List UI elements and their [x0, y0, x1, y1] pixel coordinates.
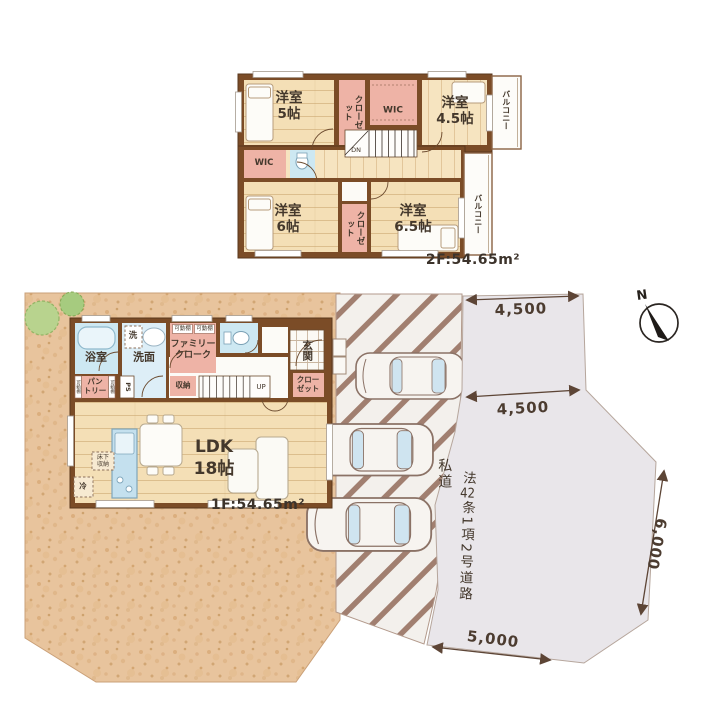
north-compass-icon [640, 304, 678, 342]
washing-machine [125, 326, 142, 348]
room-entrance [290, 330, 324, 370]
toilet-2f [290, 150, 315, 178]
floor-2f-area-label: 2F:54.65m² [420, 252, 520, 268]
floor-2f-plan [236, 72, 522, 259]
balcony-top [492, 76, 521, 149]
entrance-step [333, 357, 346, 374]
room-bath [75, 323, 118, 374]
room-family-cloak [170, 323, 216, 373]
tree-icon [60, 292, 84, 316]
entrance-step [333, 339, 346, 356]
stairs-1f [199, 376, 270, 398]
car-icon [356, 353, 464, 399]
room-wic-left [244, 150, 286, 178]
pipe-space [120, 376, 134, 398]
room-closet-1f [293, 373, 324, 397]
room-wic-top [370, 80, 417, 125]
sink [143, 328, 165, 346]
floor-plan-drawing [0, 0, 713, 709]
dining-table [140, 415, 182, 475]
floor-plan-page: 洋室 5帖 クローゼット WIC 洋室 4.5帖 バルコニー DN WIC 洋室… [0, 0, 713, 709]
room-closet-bottom [342, 204, 367, 252]
kitchen-island [112, 429, 137, 498]
room-storage [170, 376, 196, 396]
toilet-1f [220, 323, 258, 353]
room-pantry [75, 376, 115, 398]
underfloor-storage-box [92, 452, 114, 470]
fridge-box [74, 477, 93, 497]
stairs-2f [345, 130, 417, 157]
floor-1f-plan [68, 316, 333, 509]
tree-icon [25, 301, 59, 335]
floor-1f-area-label: 1F:54.65m² [205, 497, 305, 513]
balcony-right [464, 153, 492, 255]
